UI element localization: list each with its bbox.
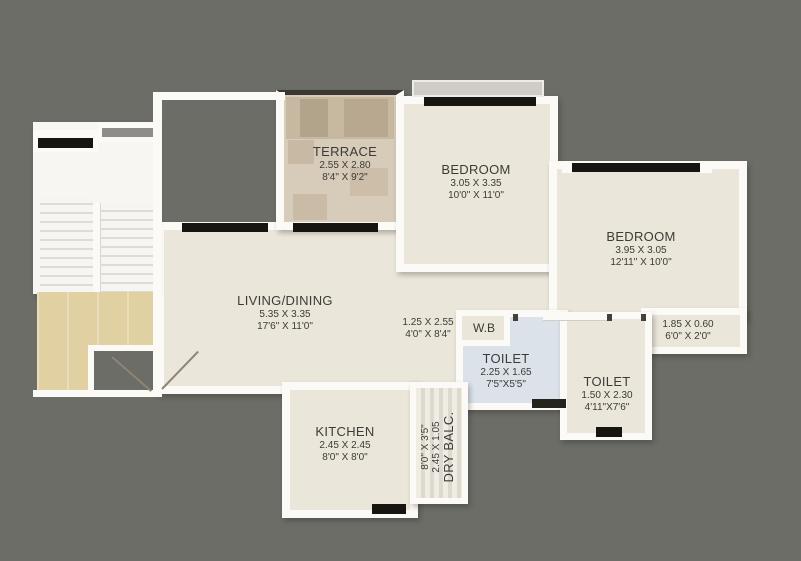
room-dim-metric: 1.85 X 0.60 bbox=[646, 319, 730, 330]
room-name: W.B bbox=[456, 321, 512, 335]
room-dim-imperial: 8'0" X 8'0" bbox=[278, 452, 412, 463]
top-connector-wall bbox=[153, 92, 285, 100]
room-dim-metric: 1.50 X 2.30 bbox=[557, 390, 657, 401]
toilet2-label: TOILET 1.50 X 2.30 4'11"X7'6" bbox=[557, 375, 657, 413]
room-dim-metric: 3.05 X 3.35 bbox=[396, 178, 556, 189]
bedroom2-label: BEDROOM 3.95 X 3.05 12'11" X 10'0" bbox=[545, 230, 737, 268]
room-dim-metric: 5.35 X 3.35 bbox=[180, 309, 390, 320]
living-window-band bbox=[182, 223, 268, 232]
room-dim-imperial: 8'4" X 9'2" bbox=[283, 172, 407, 183]
staircase-steps-left bbox=[40, 196, 93, 292]
bedroom2-window-band bbox=[572, 163, 700, 172]
kitchen-label: KITCHEN 2.45 X 2.45 8'0" X 8'0" bbox=[278, 425, 412, 463]
room-name: DRY BALC. bbox=[442, 412, 456, 483]
room-name: KITCHEN bbox=[278, 425, 412, 439]
bedroom1-window-band bbox=[424, 97, 536, 106]
lobby-bottom-wall bbox=[33, 390, 162, 397]
terrace-label: TERRACE 2.55 X 2.80 8'4" X 9'2" bbox=[283, 145, 407, 183]
staircase-window-band bbox=[38, 138, 93, 148]
terrace-texture-block bbox=[293, 194, 327, 220]
stair-living-wall bbox=[153, 92, 162, 394]
room-dim-imperial: 4'11"X7'6" bbox=[557, 402, 657, 413]
window-end-cap bbox=[700, 165, 712, 173]
door-jamb bbox=[513, 314, 518, 321]
side-balcony-label: 1.85 X 0.60 6'0" X 2'0" bbox=[646, 318, 730, 342]
room-dim-imperial: 6'0" X 2'0" bbox=[646, 331, 730, 342]
terrace-texture-block bbox=[344, 99, 388, 137]
window-end-cap bbox=[562, 165, 572, 173]
room-dim-imperial: 4'0" X 8'4" bbox=[392, 329, 464, 340]
kitchen-window-band bbox=[372, 504, 406, 514]
terrace-window-band bbox=[293, 223, 378, 232]
room-name: TOILET bbox=[446, 352, 566, 366]
room-name: BEDROOM bbox=[396, 163, 556, 177]
wash-basin-label: W.B bbox=[456, 321, 512, 335]
dry-balcony-label-rotated: 8'0" X 3'5" 2.45 X 1.05 DRY BALC. bbox=[420, 412, 456, 483]
room-dim-metric: 2.55 X 2.80 bbox=[283, 160, 407, 171]
room-dim-imperial: 17'6" X 11'0" bbox=[180, 321, 390, 332]
room-dim-imperial: 7'5"X5'5" bbox=[446, 379, 566, 390]
door-leaf bbox=[543, 313, 611, 320]
bedroom1-window-sill bbox=[412, 80, 544, 97]
room-dim-metric: 1.25 X 2.55 bbox=[392, 317, 464, 328]
room-name: TOILET bbox=[557, 375, 657, 389]
room-dim-metric: 3.95 X 3.05 bbox=[545, 245, 737, 256]
room-dim-imperial: 10'0" X 11'0" bbox=[396, 190, 556, 201]
room-dim-imperial: 12'11" X 10'0" bbox=[545, 257, 737, 268]
terrace-texture-block bbox=[300, 99, 328, 137]
staircase-divider-wall bbox=[93, 203, 100, 294]
floor-plan-canvas: TERRACE 2.55 X 2.80 8'4" X 9'2" BEDROOM … bbox=[0, 0, 801, 561]
toilet1-label: TOILET 2.25 X 1.65 7'5"X5'5" bbox=[446, 352, 566, 390]
room-name: LIVING/DINING bbox=[180, 294, 390, 308]
room-dim-metric: 2.45 X 2.45 bbox=[278, 440, 412, 451]
door-jamb bbox=[607, 314, 612, 321]
staircase-steps-right bbox=[100, 203, 153, 294]
room-name: TERRACE bbox=[283, 145, 407, 159]
living-dining-label: LIVING/DINING 5.35 X 3.35 17'6" X 11'0" bbox=[180, 294, 390, 332]
room-name: BEDROOM bbox=[545, 230, 737, 244]
bedroom1-label: BEDROOM 3.05 X 3.35 10'0" X 11'0" bbox=[396, 163, 556, 201]
room-dim-metric: 2.25 X 1.65 bbox=[446, 367, 566, 378]
passage-label: 1.25 X 2.55 4'0" X 8'4" bbox=[392, 316, 464, 340]
toilet2-window-band bbox=[596, 427, 622, 437]
room-dim-imperial: 8'0" X 3'5" bbox=[420, 412, 431, 483]
staircase-parapet-band bbox=[102, 128, 153, 137]
